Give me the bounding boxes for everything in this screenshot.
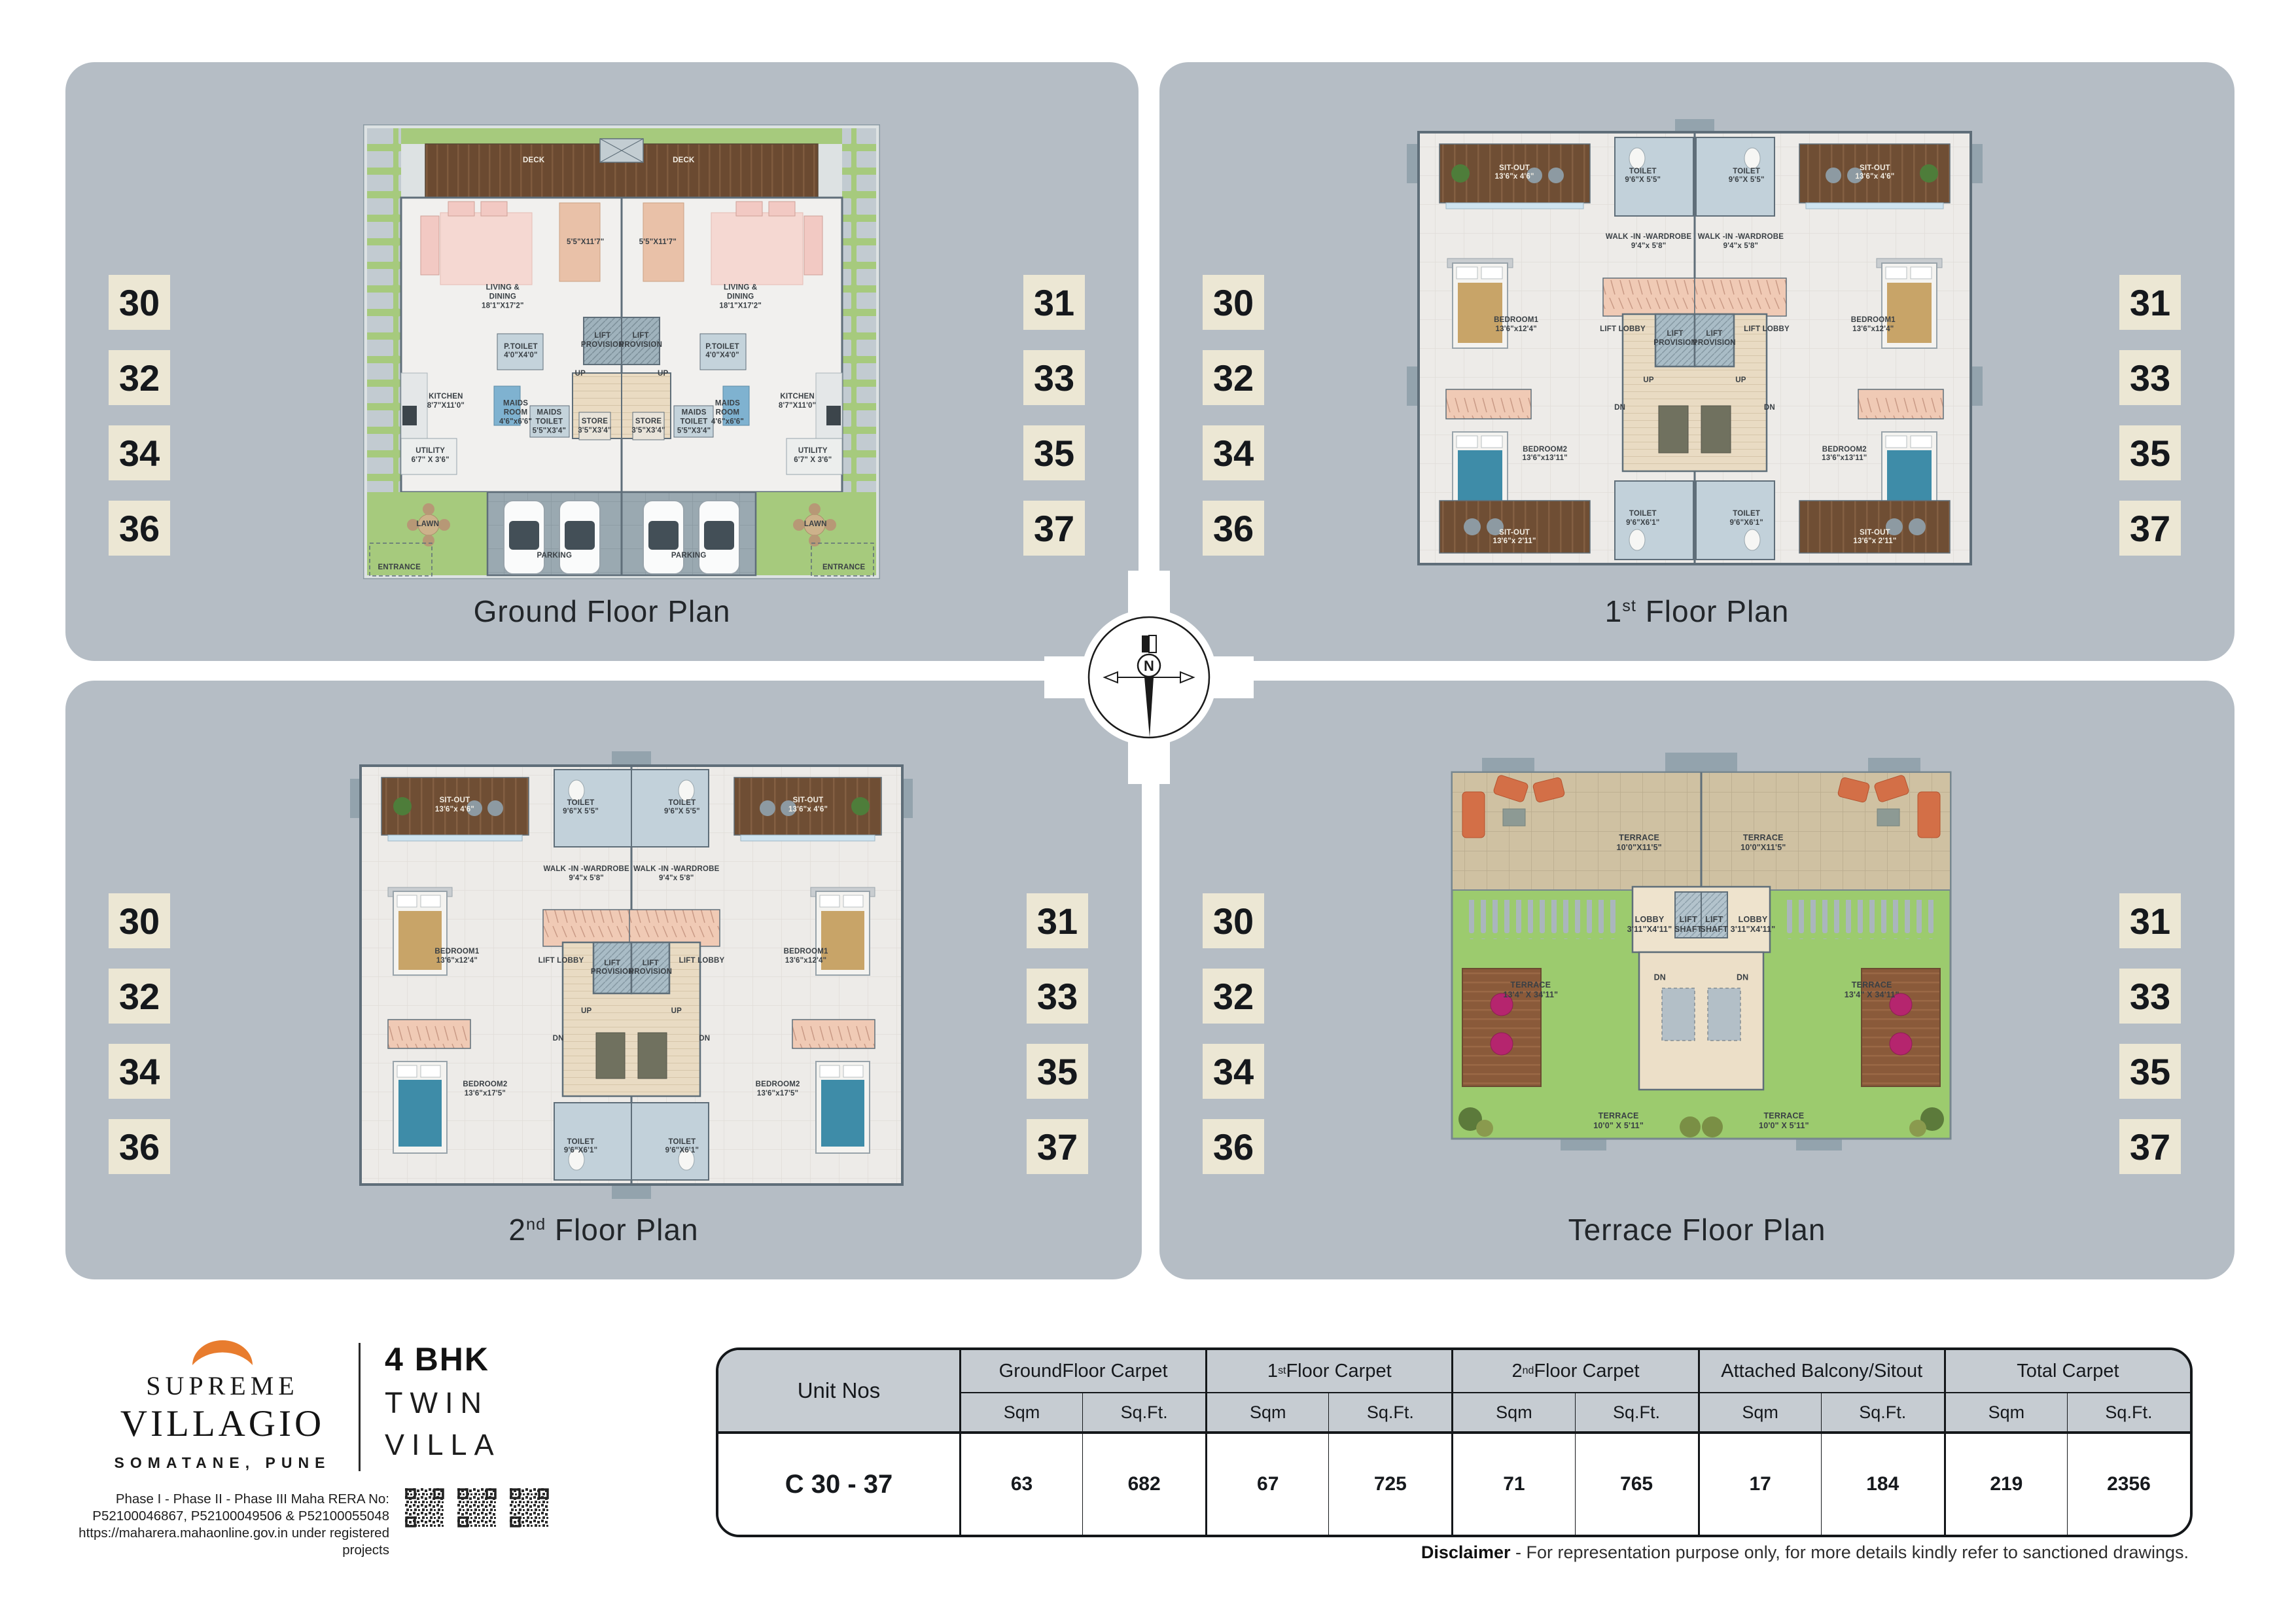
room-label: LIFT LOBBY [539,957,584,966]
room-label: WALK -IN -WARDROBE 9'4"x 5'8" [633,865,719,883]
table-header-ground-floor-carpet: Ground Floor Carpet [959,1350,1205,1393]
room-label: PARKING [537,552,573,561]
room-label: BEDROOM1 13'6"x12'4" [1851,316,1896,334]
unit-badge: 37 [2119,501,2181,556]
rera-line2: P52100046867, P52100049506 & P5210005504… [52,1508,389,1525]
unit-badge: 32 [1203,969,1264,1024]
north-label: N [1144,658,1154,674]
room-label: SIT-OUT 13'6"x 2'11" [1853,529,1896,547]
unit-badge: 31 [2119,893,2181,948]
brochure-page: DECKDECK5'5"X11'7"5'5"X11'7"LIVING & DIN… [0,0,2296,1623]
room-label: MAIDS ROOM 4'6"x6'6" [711,400,744,427]
room-label: TOILET 9'6"X 5'5" [563,799,599,817]
room-label: DN [1654,972,1666,982]
logo-arc-icon [188,1340,256,1366]
first-floor-panel: SIT-OUT 13'6"x 4'6"SIT-OUT 13'6"x 4'6"TO… [1159,62,2234,661]
subheader-sqm: Sqm [1451,1393,1574,1434]
room-label: WALK -IN -WARDROBE 9'4"x 5'8" [544,865,629,883]
room-label: UP [1643,376,1653,385]
room-label: BEDROOM2 13'6"x13'11" [1822,446,1867,464]
value-balcony-sqft: 184 [1821,1434,1944,1535]
subheader-sqm: Sqm [959,1393,1082,1434]
room-label: LIFT PROVISION [1693,330,1736,349]
table-header-balcony-sitout: Attached Balcony/Sitout [1698,1350,1944,1393]
unit-badge: 37 [2119,1119,2181,1174]
subheader-sqft: Sq.Ft. [1328,1393,1451,1434]
subheader-sqm: Sqm [1205,1393,1328,1434]
first-floor-plan-image: SIT-OUT 13'6"x 4'6"SIT-OUT 13'6"x 4'6"TO… [1407,118,1983,579]
product-type: 4 BHK [385,1340,555,1378]
room-label: UP [581,1007,592,1016]
room-label: TOILET 9'6"X6'1" [564,1138,597,1156]
unit-badge: 30 [1203,893,1264,948]
room-label: BEDROOM1 13'6"x12'4" [784,948,828,966]
room-label: TERRACE 13'4" X 34'11" [1503,980,1558,1000]
room-label: LOBBY 3'11"X4'11" [1627,915,1672,935]
room-label: UP [1735,376,1746,385]
room-label: UP [658,370,668,379]
unit-badge: 31 [2119,275,2181,330]
unit-badge: 30 [1203,275,1264,330]
room-label: P.TOILET 4'0"X4'0" [705,343,739,361]
value-total-sqm: 219 [1944,1434,2067,1535]
room-label: P.TOILET 4'0"X4'0" [504,343,538,361]
area-schedule-table: Unit Nos Ground Floor Carpet 1st Floor C… [716,1347,2193,1537]
unit-badge: 31 [1023,275,1085,330]
product-block: 4 BHK TWIN VILLA [385,1340,555,1462]
disclaimer-text: Disclaimer - For representation purpose … [1243,1543,2189,1563]
room-label: LIFT LOBBY [679,957,725,966]
unit-badge: 36 [1203,501,1264,556]
unit-badge: 35 [2119,1044,2181,1099]
rera-registration-text: Phase I - Phase II - Phase III Maha RERA… [52,1491,389,1559]
disclaimer-body: - For representation purpose only, for m… [1510,1543,2189,1562]
room-label: 5'5"X11'7" [639,238,677,247]
room-label: DN [553,1035,564,1044]
ground-floor-plan-image: DECKDECK5'5"X11'7"5'5"X11'7"LIVING & DIN… [363,124,880,579]
brand-name-line2: VILLAGIO [98,1402,347,1445]
unit-badge: 33 [2119,350,2181,405]
room-label: SIT-OUT 13'6"x 4'6" [1855,164,1894,183]
room-label: BEDROOM2 13'6"x17'5" [756,1080,800,1099]
room-label: BEDROOM2 13'6"x17'5" [463,1080,507,1099]
room-label: LIFT PROVISION [1653,330,1697,349]
value-total-sqft: 2356 [2067,1434,2190,1535]
brand-logo-block: SUPREME VILLAGIO SOMATANE, PUNE [98,1340,347,1472]
room-label: WALK -IN -WARDROBE 9'4"x 5'8" [1698,234,1784,252]
table-header-total-carpet: Total Carpet [1944,1350,2190,1393]
table-header-second-floor-carpet: 2nd Floor Carpet [1451,1350,1697,1393]
product-type-line3: VILLA [385,1428,555,1462]
room-label: DN [1737,972,1748,982]
room-labels-layer: TERRACE 10'0"X11'5"TERRACE 10'0"X11'5"LO… [1443,753,1960,1162]
room-label: TOILET 9'6"X6'1" [1729,510,1763,529]
subheader-sqm: Sqm [1944,1393,2067,1434]
room-label: DECK [673,156,694,166]
room-label: LIFT SHAFT [1700,915,1728,935]
qr-code-icon [456,1488,498,1527]
second-floor-panel: SIT-OUT 13'6"x 4'6"SIT-OUT 13'6"x 4'6"TO… [65,681,1142,1279]
room-label: KITCHEN 8'7"X11'0" [779,393,816,411]
ground-floor-panel: DECKDECK5'5"X11'7"5'5"X11'7"LIVING & DIN… [65,62,1139,661]
unit-badge: 30 [109,275,170,330]
room-label: SIT-OUT 13'6"x 4'6" [435,796,474,815]
room-label: TOILET 9'6"X 5'5" [664,799,700,817]
value-second-sqft: 765 [1575,1434,1698,1535]
unit-badge: 36 [109,501,170,556]
unit-badge: 32 [1203,350,1264,405]
product-type-line2: TWIN [385,1386,555,1420]
room-labels-layer: SIT-OUT 13'6"x 4'6"SIT-OUT 13'6"x 4'6"TO… [350,746,913,1204]
room-label: TOILET 9'6"X 5'5" [1625,168,1661,186]
unit-badge: 33 [1023,350,1085,405]
unit-badge: 35 [1023,425,1085,480]
room-label: TERRACE 13'4" X 34'11" [1845,980,1899,1000]
qr-code-icon [404,1488,446,1527]
plan-title: Terrace Floor Plan [1159,1212,2234,1247]
room-label: TOILET 9'6"X6'1" [665,1138,699,1156]
unit-badge: 32 [109,969,170,1024]
room-label: WALK -IN -WARDROBE 9'4"x 5'8" [1606,234,1691,252]
subheader-sqft: Sq.Ft. [1821,1393,1944,1434]
room-label: UP [671,1007,682,1016]
unit-numbers-cell: C 30 - 37 [718,1434,959,1535]
unit-badge: 31 [1027,893,1088,948]
unit-badge: 35 [1027,1044,1088,1099]
unit-badge: 37 [1023,501,1085,556]
room-label: MAIDS ROOM 4'6"x6'6" [499,400,532,427]
value-balcony-sqm: 17 [1698,1434,1821,1535]
room-label: LIFT PROVISION [581,332,624,350]
qr-code-icon [508,1488,550,1527]
terrace-floor-plan-image: TERRACE 10'0"X11'5"TERRACE 10'0"X11'5"LO… [1443,753,1960,1162]
room-label: LIFT LOBBY [1600,325,1646,334]
room-label: LIVING & DINING 18'1"X17'2" [482,283,524,310]
room-label: UTILITY 6'7" X 3'6" [794,448,832,466]
unit-badge: 37 [1027,1119,1088,1174]
plan-title: 1st Floor Plan [1159,594,2234,629]
unit-badge: 36 [109,1119,170,1174]
unit-badge: 34 [1203,1044,1264,1099]
room-label: BEDROOM2 13'6"x13'11" [1523,446,1568,464]
plan-title: 2nd Floor Plan [65,1212,1142,1247]
room-label: 5'5"X11'7" [567,238,604,247]
room-label: DN [699,1035,710,1044]
subheader-sqft: Sq.Ft. [2067,1393,2190,1434]
brand-divider [359,1343,361,1471]
room-label: LAWN [804,520,827,529]
room-label: LIFT LOBBY [1744,325,1790,334]
unit-badge: 34 [1203,425,1264,480]
room-label: SIT-OUT 13'6"x 2'11" [1492,529,1536,547]
room-label: STORE 3'5"X3'4" [578,418,611,436]
room-label: BEDROOM1 13'6"x12'4" [1494,316,1538,334]
brand-name-line1: SUPREME [98,1370,347,1401]
second-floor-plan-image: SIT-OUT 13'6"x 4'6"SIT-OUT 13'6"x 4'6"TO… [350,746,913,1204]
room-label: STORE 3'5"X3'4" [631,418,665,436]
room-label: KITCHEN 8'7"X11'0" [427,393,465,411]
room-label: BEDROOM1 13'6"x12'4" [434,948,479,966]
room-labels-layer: SIT-OUT 13'6"x 4'6"SIT-OUT 13'6"x 4'6"TO… [1407,118,1983,579]
value-ground-sqm: 63 [959,1434,1082,1535]
room-label: LIVING & DINING 18'1"X17'2" [719,283,762,310]
value-second-sqm: 71 [1451,1434,1574,1535]
unit-badge: 35 [2119,425,2181,480]
table-header-first-floor-carpet: 1st Floor Carpet [1205,1350,1451,1393]
room-label: UP [575,370,586,379]
room-label: TOILET 9'6"X6'1" [1626,510,1659,529]
unit-badge: 34 [109,1044,170,1099]
room-label: DECK [523,156,544,166]
room-label: LAWN [416,520,439,529]
room-label: TERRACE 10'0" X 5'11" [1759,1111,1809,1131]
room-label: MAIDS TOILET 5'5"X3'4" [533,409,566,436]
room-label: LIFT SHAFT [1674,915,1703,935]
room-label: LIFT PROVISION [619,332,662,350]
brand-location: SOMATANE, PUNE [98,1454,347,1472]
room-label: SIT-OUT 13'6"x 4'6" [788,796,828,815]
disclaimer-label: Disclaimer [1421,1543,1511,1562]
room-label: LOBBY 3'11"X4'11" [1731,915,1776,935]
room-label: MAIDS TOILET 5'5"X3'4" [677,409,711,436]
compass-icon: N [1080,608,1218,747]
value-first-sqm: 67 [1205,1434,1328,1535]
room-label: DN [1614,404,1625,413]
room-labels-layer: DECKDECK5'5"X11'7"5'5"X11'7"LIVING & DIN… [363,124,880,579]
subheader-sqft: Sq.Ft. [1082,1393,1205,1434]
room-label: ENTRANCE [822,563,866,573]
room-label: ENTRANCE [378,563,421,573]
room-label: TOILET 9'6"X 5'5" [1729,168,1765,186]
unit-badge: 33 [2119,969,2181,1024]
subheader-sqm: Sqm [1698,1393,1821,1434]
unit-badge: 34 [109,425,170,480]
room-label: TERRACE 10'0" X 5'11" [1593,1111,1644,1131]
unit-badge: 32 [109,350,170,405]
rera-url: https://maharera.mahaonline.gov.in under… [52,1525,389,1559]
plan-title: Ground Floor Plan [65,594,1139,629]
unit-badge: 30 [109,893,170,948]
room-label: LIFT PROVISION [629,959,672,978]
room-label: TERRACE 10'0"X11'5" [1740,833,1786,853]
room-label: UTILITY 6'7" X 3'6" [412,448,450,466]
room-label: DN [1764,404,1775,413]
value-ground-sqft: 682 [1082,1434,1205,1535]
room-label: LIFT PROVISION [591,959,634,978]
rera-line1: Phase I - Phase II - Phase III Maha RERA… [52,1491,389,1508]
terrace-floor-panel: TERRACE 10'0"X11'5"TERRACE 10'0"X11'5"LO… [1159,681,2234,1279]
subheader-sqft: Sq.Ft. [1575,1393,1698,1434]
value-first-sqft: 725 [1328,1434,1451,1535]
unit-badge: 33 [1027,969,1088,1024]
qr-code-row [404,1488,550,1527]
room-label: PARKING [671,552,707,561]
table-header-unit-nos: Unit Nos [718,1350,959,1434]
unit-badge: 36 [1203,1119,1264,1174]
room-label: SIT-OUT 13'6"x 4'6" [1494,164,1534,183]
room-label: TERRACE 10'0"X11'5" [1617,833,1662,853]
